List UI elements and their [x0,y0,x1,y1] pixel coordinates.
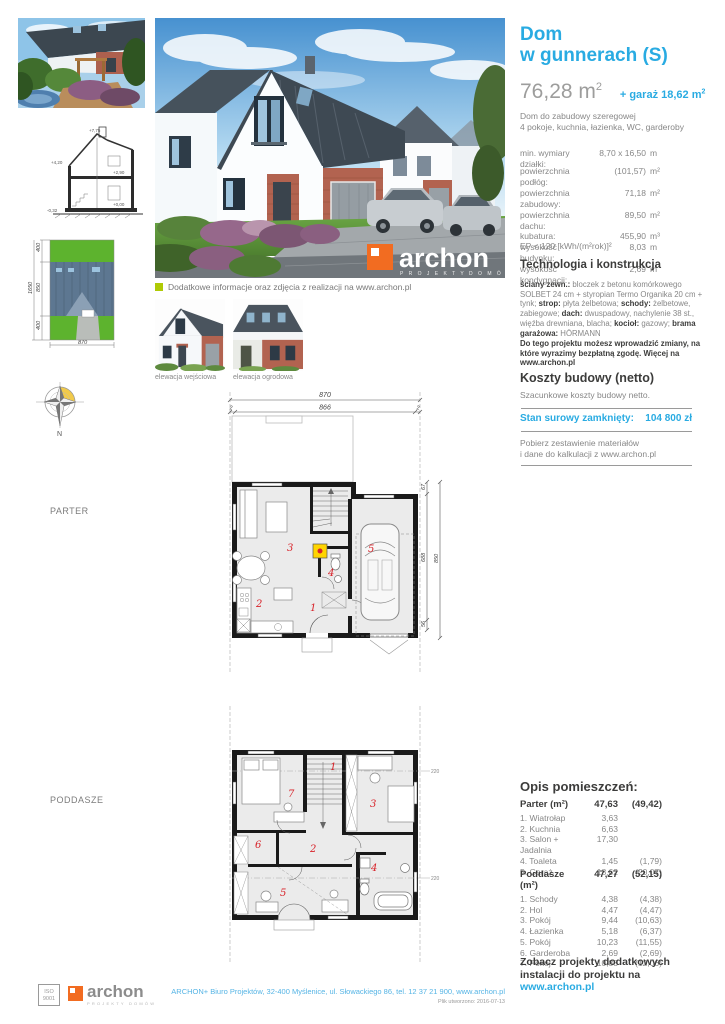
floor-plan-poddasze: 220 220 [218,702,468,967]
room-number: 4 [327,568,334,579]
room-number: 5 [280,888,286,899]
iso-9001-badge: ISO 9001 [38,984,60,1006]
archon-link[interactable]: www.archon.pl [520,981,712,994]
room-row: 1. Wiatrołap3,63 [520,813,662,824]
changes-note: Do tego projektu możesz wprowadzić zmian… [520,339,706,368]
section-mark: +0,00 [113,202,125,207]
file-created-stamp: Plik utworzono: 2016-07-13 [300,999,505,1005]
siteplan-dim: 870 [78,340,88,346]
rooms-heading: Opis pomieszczeń: [520,779,712,794]
dim-2-left: 2 [228,406,232,412]
footer-logo-text: archon [87,983,156,1001]
dim-2-right: 2 [415,406,419,412]
dim-688: 688 [421,552,427,562]
divider [521,465,692,466]
materials-download-note: Pobierz zestawienie materiałów i dane do… [520,438,712,459]
technology-body: ściany zewn.: bloczek z betonu komórkowe… [520,280,706,338]
rooms-table-poddasze: Poddasze (m²) 47,27 (52,15) 1. Schody4,3… [520,869,662,969]
area-summary: 76,28 m2 + garaż 18,62 m2 [520,80,712,104]
garden-photo-thumbnail [18,18,145,108]
rooms-table-parter: Parter (m²) 47,63 (49,42) 1. Wiatrołap3,… [520,799,662,877]
shell-state-row: Stan surowy zamknięty: 104 800 zł [520,413,692,424]
footer-address[interactable]: ARCHON+ Biuro Projektów, 32-400 Myślenic… [160,987,505,996]
lime-square-icon [155,283,163,291]
room-row: 5. Pokój10,23(11,55) [520,937,662,948]
floor-label-parter: PARTER [50,506,89,516]
room-row: 3. Salon + Jadalnia17,30 [520,834,662,855]
costs-heading: Koszty budowy (netto) [520,371,712,385]
project-sheet: +7,75 +4,20 +2,90 +0,00 -0,32 [0,0,725,1024]
room-row: 4. Łazienka5,18(6,37) [520,926,662,937]
section-mark: +2,90 [113,170,125,175]
shell-state-label: Stan surowy zamknięty: [520,413,634,424]
room-number: 3 [370,799,376,810]
room-number: 6 [255,840,262,851]
compass-north-label: N [57,431,62,438]
room-number: 2 [309,844,316,855]
room-row: 1. Schody4,38(4,38) [520,894,662,905]
room-row: 2. Hol4,47(4,47) [520,905,662,916]
section-drawing: +7,75 +4,20 +2,90 +0,00 -0,32 [45,126,150,226]
siteplan-dim: 1650 [28,281,34,294]
info-caption-text: Dodatkowe informacje oraz zdjęcia z real… [168,282,411,292]
siteplan-dim: 400 [36,242,42,252]
room-number: 7 [288,789,295,800]
siteplan-dim: 850 [36,282,42,292]
room-row: 2. Kuchnia6,63 [520,824,662,835]
shell-state-price: 104 800 zł [645,413,692,424]
dim-870: 870 [319,392,331,399]
room-number: 3 [287,543,293,554]
knee-mark: 220 [431,876,440,882]
page-title: Dom w gunnerach (S) [520,24,712,66]
garage-area: + garaż 18,62 m2 [620,89,706,101]
elevation-front-caption: elewacja wejściowa [155,374,216,381]
divider [521,431,692,432]
elevation-garden-thumbnail [233,299,303,371]
room-number: 1 [310,603,316,614]
dim-67: 67 [421,483,427,490]
technology-heading: Technologia i konstrukcja [520,259,712,271]
costs-subtitle: Szacunkowe koszty budowy netto. [520,390,712,400]
room-number: 4 [370,863,377,874]
see-more-note: Zobacz projekty dodatkowych instalacji d… [520,956,712,994]
siteplan-dim: 400 [36,320,42,330]
floor-label-poddasze: PODDASZE [50,795,104,805]
elevation-garden-caption: elewacja ogrodowa [233,374,293,381]
dim-866: 866 [319,405,331,412]
room-number: 1 [330,762,336,773]
knee-mark: 220 [431,769,440,775]
elevation-front-thumbnail [155,299,225,371]
footer-logo-subtext: PROJEKTY DOMÓW [87,1001,156,1006]
archon-logo-subtext: P R O J E K T Y D O M Ó W [400,270,505,277]
room-row: 4. Toaleta1,45(1,79) [520,856,662,867]
car-symbol [361,524,399,620]
compass-rose-icon: N [36,382,84,438]
site-plan: 400 850 400 1650 870 [26,236,134,350]
floor-plan-parter: 870 866 2 2 [218,386,468,678]
info-caption: Dodatkowe informacje oraz zdjęcia z real… [155,282,411,292]
section-mark: +7,75 [89,128,101,133]
energy-rating: EP < 120 [kWh/(m²rok)]² [520,241,712,251]
room-row: 3. Pokój9,44(10,63) [520,915,662,926]
total-area: 76,28 m2 [520,80,608,103]
section-mark: -0,32 [47,208,58,213]
dim-850: 850 [434,553,440,563]
section-mark: +4,20 [51,160,63,165]
dim-56: 56 [421,620,427,627]
room-number: 5 [368,544,374,555]
footer-archon-logo: archon PROJEKTY DOMÓW [68,983,156,1006]
project-description: Dom do zabudowy szeregowej 4 pokoje, kuc… [520,111,712,132]
archon-logo-text: archon [399,243,489,273]
room-number: 2 [255,599,262,610]
hero-image: archon P R O J E K T Y D O M Ó W [155,18,505,278]
archon-logo-square-icon [68,986,83,1001]
divider [521,408,692,409]
